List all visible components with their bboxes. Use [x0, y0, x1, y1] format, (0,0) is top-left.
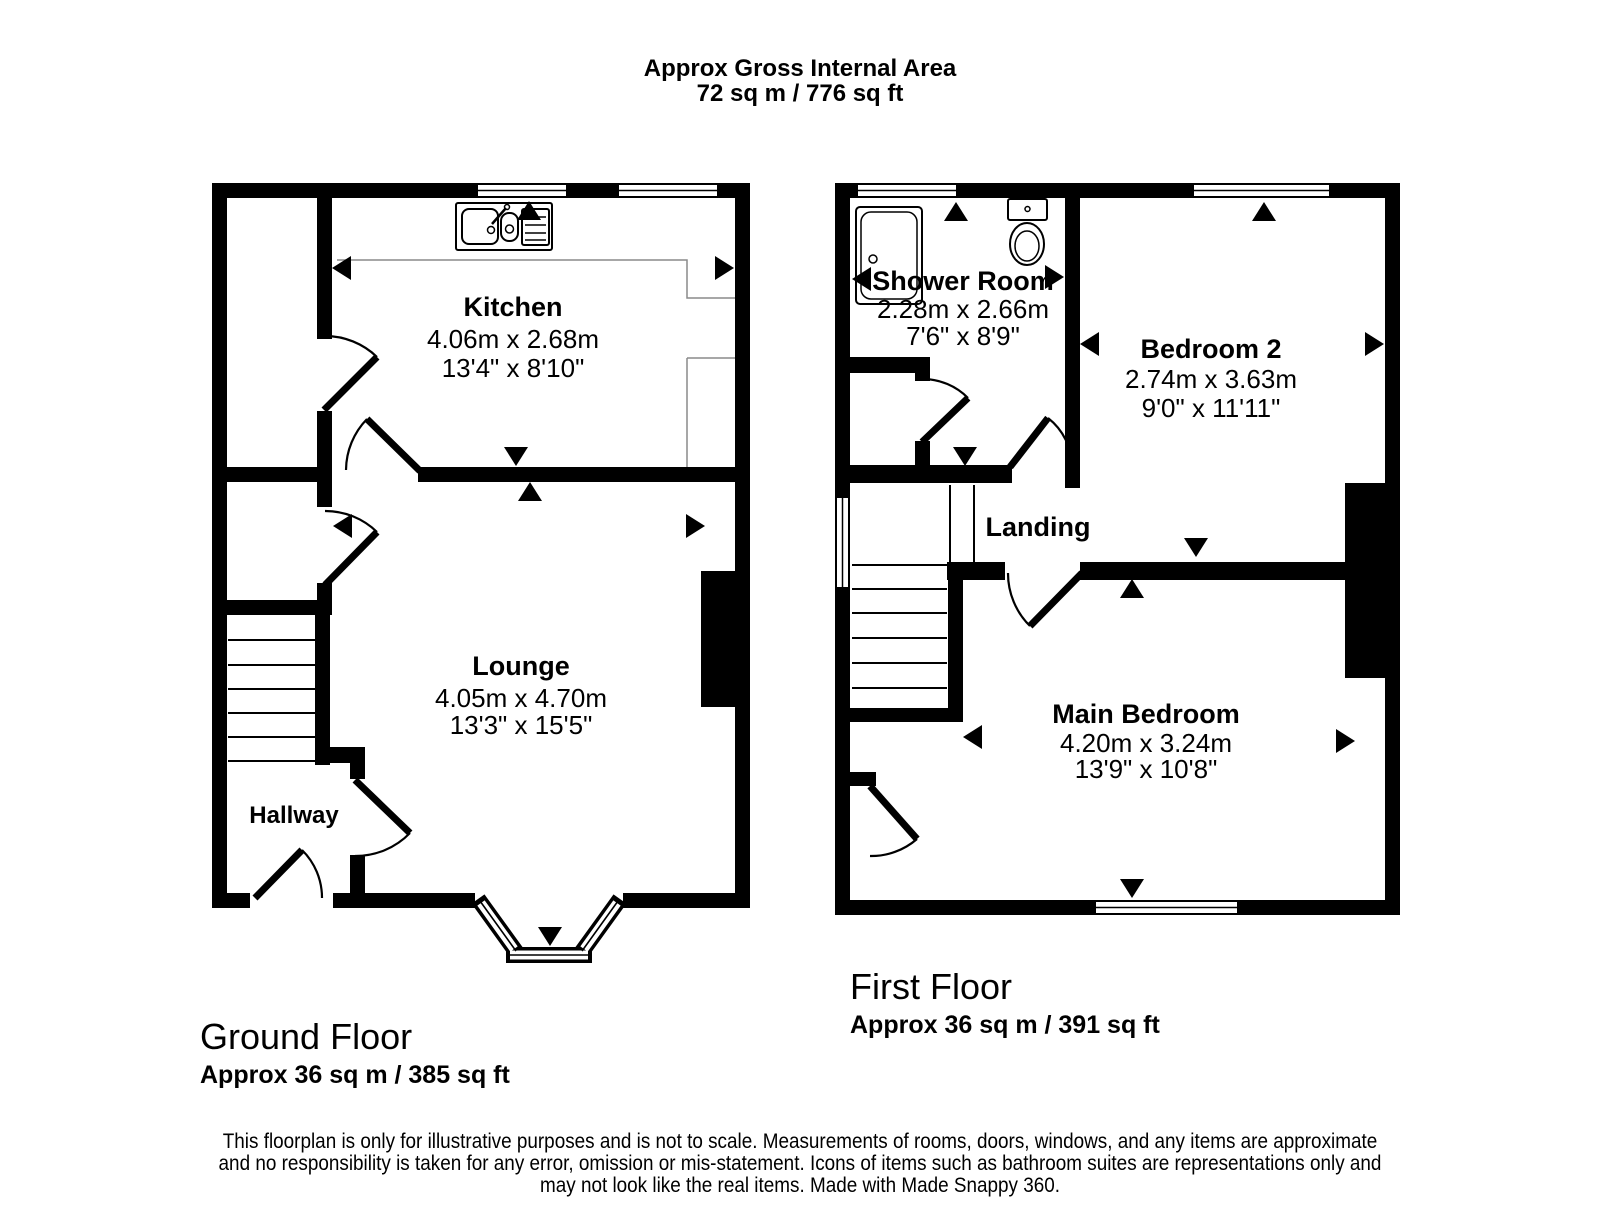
lounge-metric: 4.05m x 4.70m — [435, 683, 607, 713]
window-icon — [1095, 901, 1238, 914]
window-icon — [857, 184, 957, 197]
door-icon — [922, 379, 968, 442]
direction-arrow-icon — [963, 725, 982, 749]
door-icon — [1008, 573, 1082, 626]
door-icon — [346, 419, 420, 471]
chimney-breast — [1345, 483, 1387, 678]
ground-floor-caption: Ground Floor — [200, 1018, 412, 1056]
direction-arrow-icon — [333, 514, 352, 538]
window-icon — [1193, 184, 1330, 197]
ground-floor-area: Approx 36 sq m / 385 sq ft — [200, 1062, 510, 1088]
shower-room-imperial: 7'6" x 8'9" — [906, 321, 1020, 351]
main-bedroom-label: Main Bedroom — [1052, 699, 1240, 729]
direction-arrow-icon — [1184, 538, 1208, 557]
bedroom-2-metric: 2.74m x 3.63m — [1125, 364, 1297, 394]
disclaimer-line: may not look like the real items. Made w… — [80, 1175, 1520, 1197]
direction-arrow-icon — [944, 202, 968, 221]
window-icon — [618, 184, 718, 197]
direction-arrow-icon — [953, 447, 977, 466]
lounge-label: Lounge — [472, 651, 569, 681]
direction-arrow-icon — [1120, 579, 1144, 598]
shower-room-metric: 2.28m x 2.66m — [877, 294, 1049, 324]
front-door-icon — [255, 850, 322, 898]
gross-area-title: Approx Gross Internal Area — [0, 56, 1600, 81]
first-floor-area: Approx 36 sq m / 391 sq ft — [850, 1012, 1160, 1038]
door-icon — [324, 336, 377, 410]
ground-room-labels: Kitchen 4.06m x 2.68m 13'4" x 8'10" Loun… — [249, 292, 607, 829]
first-floor-plan: Shower Room 2.28m x 2.66m 7'6" x 8'9" Be… — [820, 165, 1420, 935]
lounge-imperial: 13'3" x 15'5" — [450, 710, 593, 740]
disclaimer-line: and no responsibility is taken for any e… — [80, 1153, 1520, 1175]
direction-arrow-icon — [518, 482, 542, 501]
bedroom-2-label: Bedroom 2 — [1140, 334, 1281, 364]
kitchen-metric: 4.06m x 2.68m — [427, 324, 599, 354]
toilet-icon — [1008, 199, 1047, 265]
direction-arrow-icon — [686, 514, 705, 538]
shower-room-label: Shower Room — [872, 266, 1054, 296]
direction-arrow-icon — [504, 447, 528, 466]
kitchen-imperial: 13'4" x 8'10" — [442, 353, 585, 383]
direction-arrow-icon — [715, 256, 734, 280]
door-icon — [355, 780, 410, 856]
window-icon — [477, 184, 567, 197]
direction-arrow-icon — [1120, 879, 1144, 898]
direction-arrow-icon — [1365, 332, 1384, 356]
landing-label: Landing — [986, 512, 1091, 542]
kitchen-sink-icon — [456, 203, 552, 250]
door-icon — [1010, 418, 1072, 467]
main-bedroom-imperial: 13'9" x 10'8" — [1075, 754, 1218, 784]
window-icon — [836, 497, 849, 588]
hallway-label: Hallway — [249, 802, 339, 829]
ground-floor-plan: Kitchen 4.06m x 2.68m 13'4" x 8'10" Loun… — [195, 165, 775, 980]
disclaimer: This floorplan is only for illustrative … — [80, 1131, 1520, 1197]
first-floor-caption: First Floor — [850, 968, 1012, 1006]
direction-arrow-icon — [1252, 202, 1276, 221]
direction-arrow-icon — [1080, 332, 1099, 356]
bedroom-2-imperial: 9'0" x 11'11" — [1142, 393, 1281, 423]
direction-arrow-icon — [538, 927, 562, 946]
chimney-breast — [701, 571, 735, 707]
disclaimer-line: This floorplan is only for illustrative … — [80, 1131, 1520, 1153]
page-title: Approx Gross Internal Area 72 sq m / 776… — [0, 56, 1600, 106]
kitchen-label: Kitchen — [463, 292, 562, 322]
door-icon — [870, 786, 917, 856]
stair-balustrade — [950, 485, 974, 562]
ground-stairs — [228, 640, 315, 761]
gross-area-value: 72 sq m / 776 sq ft — [0, 81, 1600, 106]
direction-arrow-icon — [1336, 729, 1355, 753]
first-doors — [870, 379, 1082, 856]
